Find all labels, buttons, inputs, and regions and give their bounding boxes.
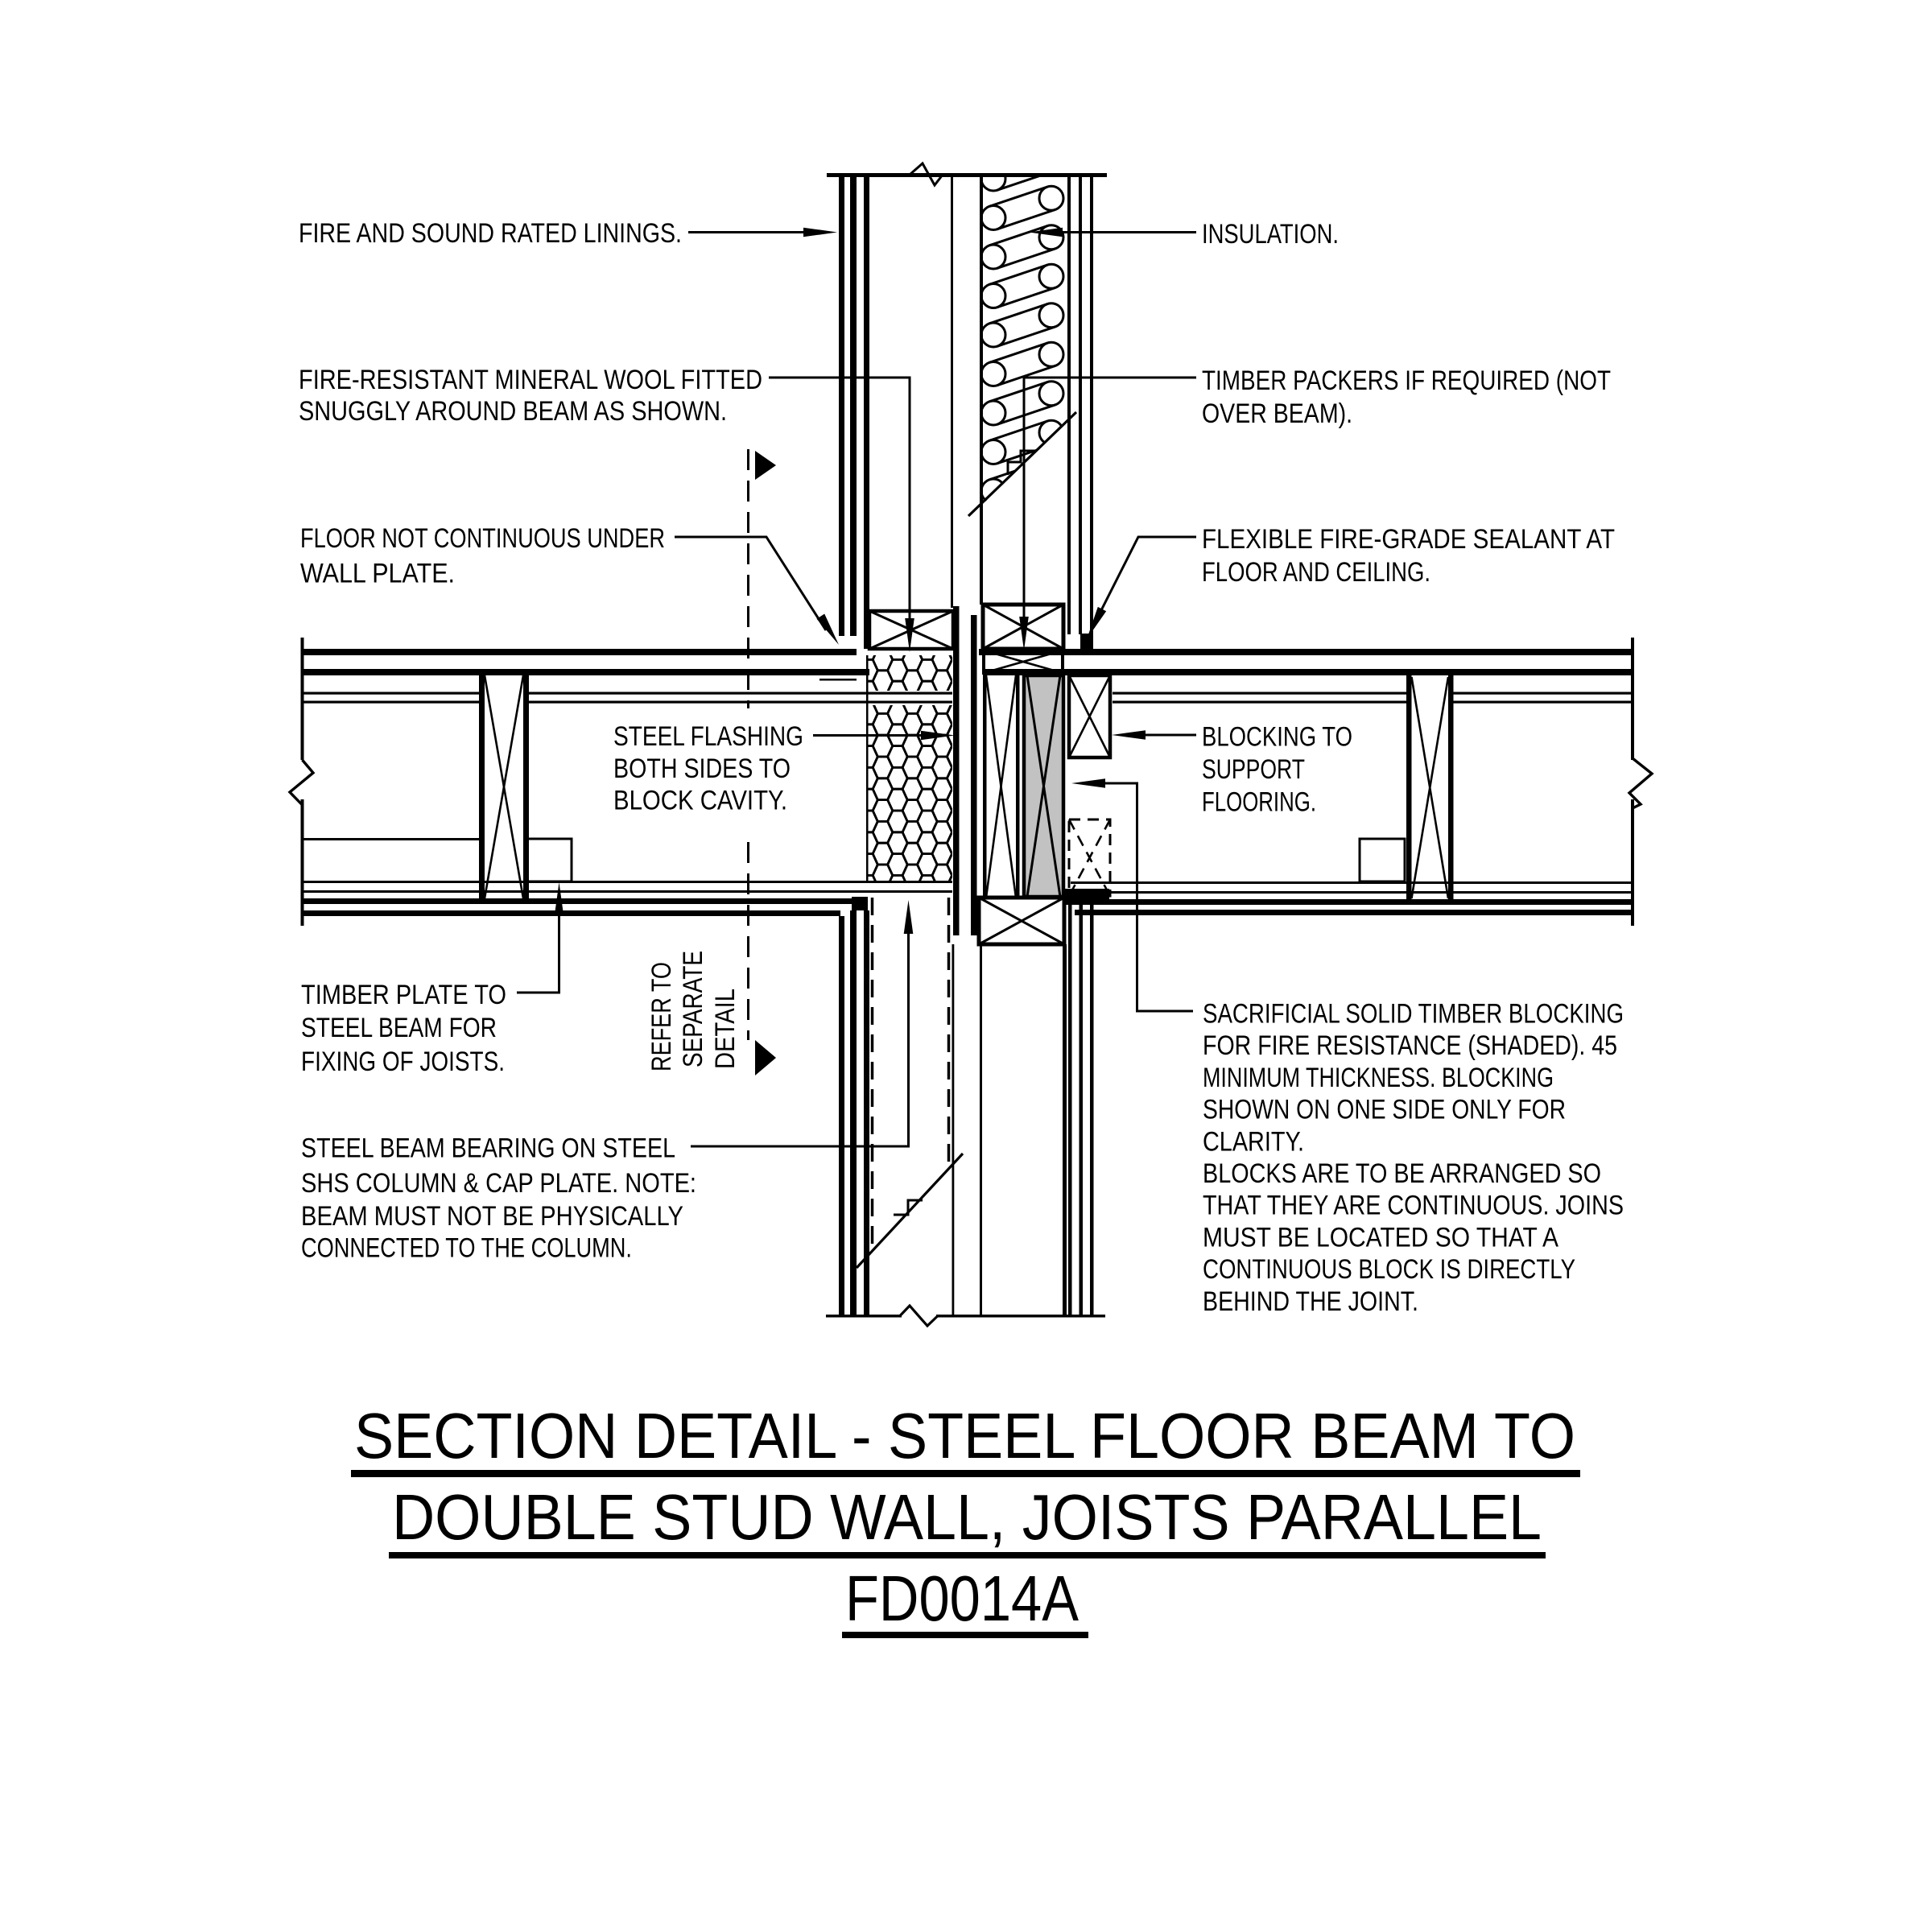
svg-text:FOR FIRE RESISTANCE (SHADED).: FOR FIRE RESISTANCE (SHADED). 45 <box>1203 1030 1617 1061</box>
svg-text:FLOOR AND CEILING.: FLOOR AND CEILING. <box>1202 557 1430 588</box>
svg-text:INSULATION.: INSULATION. <box>1202 219 1339 250</box>
svg-text:SECTION DETAIL - STEEL FLOOR B: SECTION DETAIL - STEEL FLOOR BEAM TO <box>354 1400 1575 1472</box>
svg-text:FLEXIBLE FIRE-GRADE SEALANT AT: FLEXIBLE FIRE-GRADE SEALANT AT <box>1202 524 1615 555</box>
svg-text:SEPARATE: SEPARATE <box>678 951 708 1067</box>
svg-text:FD0014A: FD0014A <box>845 1563 1080 1634</box>
svg-text:CLARITY.: CLARITY. <box>1203 1126 1304 1157</box>
svg-text:BOTH SIDES TO: BOTH SIDES TO <box>613 753 791 784</box>
svg-text:CONNECTED TO THE COLUMN.: CONNECTED TO THE COLUMN. <box>301 1233 632 1264</box>
svg-text:STEEL FLASHING: STEEL FLASHING <box>613 721 803 752</box>
svg-text:THAT THEY ARE CONTINUOUS. JOIN: THAT THEY ARE CONTINUOUS. JOINS <box>1203 1191 1624 1221</box>
svg-text:FIXING OF JOISTS.: FIXING OF JOISTS. <box>301 1046 505 1077</box>
svg-text:REFER TO: REFER TO <box>646 962 677 1071</box>
svg-text:BEHIND THE JOINT.: BEHIND THE JOINT. <box>1203 1286 1418 1317</box>
svg-text:DETAIL: DETAIL <box>710 989 741 1069</box>
svg-text:SHOWN ON ONE SIDE ONLY FOR: SHOWN ON ONE SIDE ONLY FOR <box>1203 1095 1566 1125</box>
svg-text:BLOCKS ARE TO BE ARRANGED SO: BLOCKS ARE TO BE ARRANGED SO <box>1203 1158 1601 1189</box>
svg-text:FLOORING.: FLOORING. <box>1202 787 1316 818</box>
svg-text:MUST BE LOCATED SO THAT A: MUST BE LOCATED SO THAT A <box>1203 1222 1558 1253</box>
svg-text:SUPPORT: SUPPORT <box>1202 754 1305 785</box>
svg-text:BLOCK CAVITY.: BLOCK CAVITY. <box>613 786 787 816</box>
svg-text:BEAM MUST NOT BE PHYSICALLY: BEAM MUST NOT BE PHYSICALLY <box>301 1201 683 1232</box>
svg-text:STEEL BEAM BEARING ON STEEL: STEEL BEAM BEARING ON STEEL <box>301 1133 675 1164</box>
svg-text:OVER BEAM).: OVER BEAM). <box>1202 398 1352 429</box>
svg-text:TIMBER PACKERS IF REQUIRED (NO: TIMBER PACKERS IF REQUIRED (NOT <box>1202 365 1611 396</box>
svg-text:MINIMUM THICKNESS. BLOCKING: MINIMUM THICKNESS. BLOCKING <box>1203 1063 1554 1093</box>
svg-text:TIMBER PLATE TO: TIMBER PLATE TO <box>301 980 506 1010</box>
svg-text:SHS COLUMN & CAP PLATE. NOTE:: SHS COLUMN & CAP PLATE. NOTE: <box>301 1168 696 1199</box>
svg-text:STEEL BEAM FOR: STEEL BEAM FOR <box>301 1013 497 1043</box>
svg-text:FIRE AND SOUND RATED LININGS.: FIRE AND SOUND RATED LININGS. <box>299 218 682 249</box>
svg-text:SACRIFICIAL SOLID TIMBER BLOCK: SACRIFICIAL SOLID TIMBER BLOCKING <box>1203 999 1624 1030</box>
svg-text:BLOCKING TO: BLOCKING TO <box>1202 722 1352 753</box>
svg-text:FIRE-RESISTANT MINERAL WOOL FI: FIRE-RESISTANT MINERAL WOOL FITTED <box>299 365 762 395</box>
svg-text:CONTINUOUS BLOCK IS DIRECTLY: CONTINUOUS BLOCK IS DIRECTLY <box>1203 1254 1575 1285</box>
svg-text:SNUGGLY AROUND BEAM AS SHOWN.: SNUGGLY AROUND BEAM AS SHOWN. <box>299 396 727 427</box>
svg-text:FLOOR NOT CONTINUOUS UNDER: FLOOR NOT CONTINUOUS UNDER <box>300 523 665 554</box>
svg-text:DOUBLE STUD WALL, JOISTS PARAL: DOUBLE STUD WALL, JOISTS PARALLEL <box>392 1481 1542 1553</box>
svg-text:WALL PLATE.: WALL PLATE. <box>300 559 455 589</box>
